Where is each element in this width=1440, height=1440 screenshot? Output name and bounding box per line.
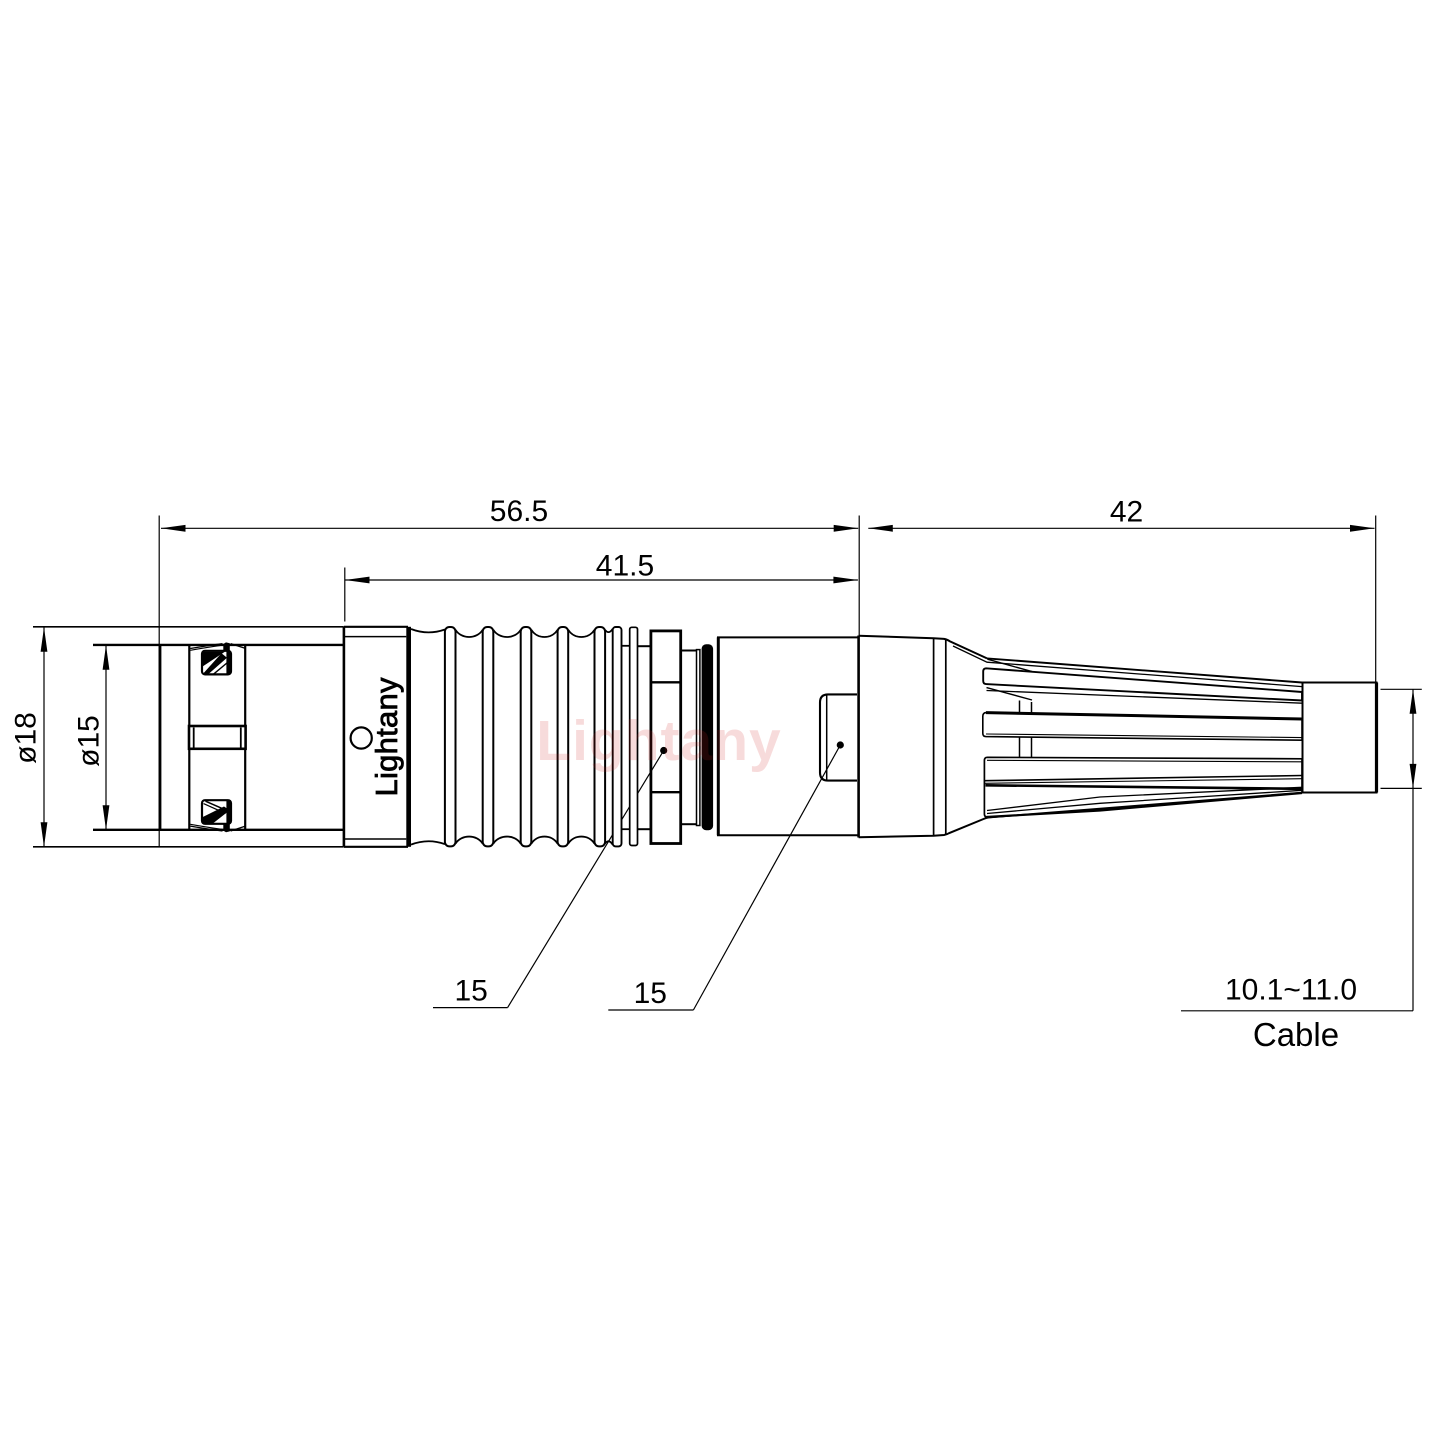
svg-text:41.5: 41.5 — [596, 550, 654, 583]
svg-text:15: 15 — [455, 975, 488, 1008]
svg-text:Lightany: Lightany — [369, 677, 404, 797]
svg-text:ø15: ø15 — [73, 715, 106, 767]
svg-text:10.1~11.0: 10.1~11.0 — [1225, 974, 1357, 1007]
svg-text:42: 42 — [1110, 496, 1143, 529]
svg-text:56.5: 56.5 — [490, 495, 548, 528]
svg-text:Cable: Cable — [1253, 1016, 1339, 1053]
svg-text:Lightany: Lightany — [536, 709, 782, 773]
svg-text:ø18: ø18 — [9, 712, 42, 764]
svg-text:15: 15 — [634, 977, 667, 1010]
